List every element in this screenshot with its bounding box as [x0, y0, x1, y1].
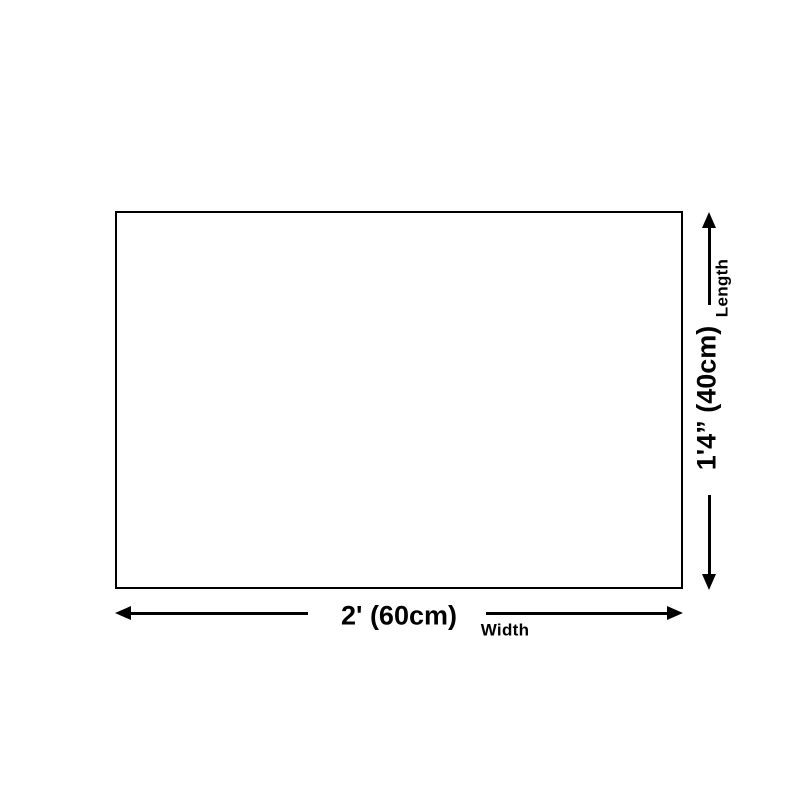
- arrow-down-icon: [702, 574, 716, 590]
- product-outline: [115, 211, 683, 589]
- width-dimension-label: 2' (60cm): [341, 603, 457, 630]
- width-dimension-line-right: [486, 612, 670, 615]
- length-dimension-line-bottom: [708, 495, 711, 575]
- size-guide-diagram: 2' (60cm) Width 1'4” (40cm) Length: [0, 0, 800, 800]
- length-caption-label: Length: [714, 259, 731, 317]
- length-dimension-label: 1'4” (40cm): [694, 326, 721, 471]
- arrow-right-icon: [667, 606, 683, 620]
- length-dimension-line-top: [708, 225, 711, 305]
- width-caption-label: Width: [481, 622, 530, 639]
- width-dimension-line-left: [127, 612, 308, 615]
